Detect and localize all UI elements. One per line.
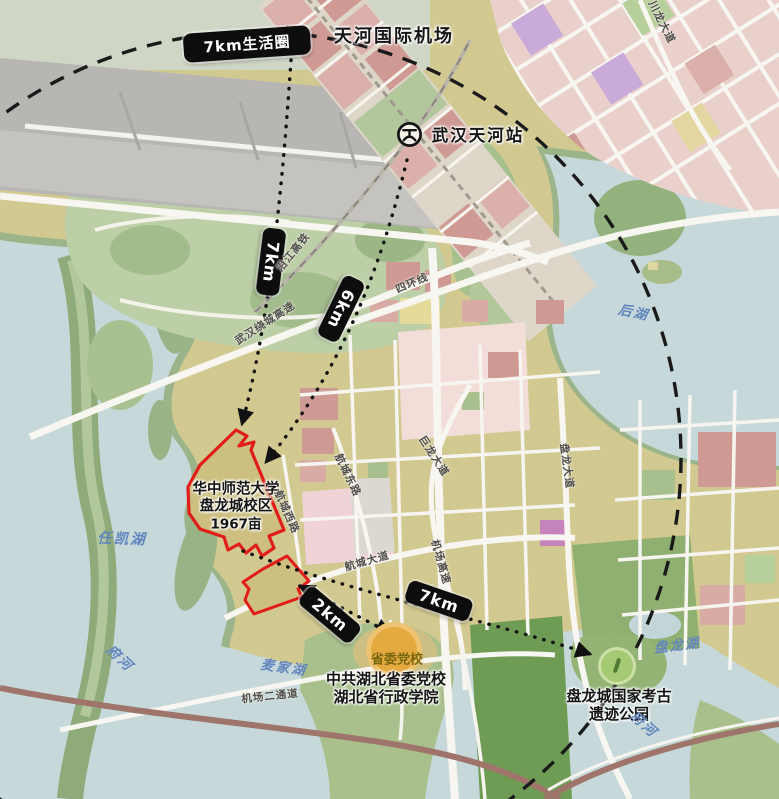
airport-label: 天河国际机场 bbox=[334, 22, 454, 48]
heritage-park-label-line1: 盘龙城国家考古 bbox=[566, 687, 671, 705]
heritage-park-marker bbox=[598, 647, 636, 685]
campus-area-label: 1967亩 bbox=[193, 516, 280, 532]
planning-map: 7km生活圈 7km 6km 2km 7km 天河国际机场 武汉天河站 华中师范… bbox=[0, 0, 779, 799]
party-school-label-line2: 湖北省行政学院 bbox=[326, 688, 446, 706]
party-school-label-line1: 中共湖北省委党校 bbox=[326, 670, 446, 688]
station-label: 武汉天河站 bbox=[432, 122, 525, 146]
railway-station-icon bbox=[395, 120, 424, 149]
party-school-label: 中共湖北省委党校 湖北省行政学院 bbox=[326, 670, 446, 706]
lake-label-renkai: 任凯湖 bbox=[97, 527, 147, 550]
heritage-park-label: 盘龙城国家考古 遗迹公园 bbox=[566, 687, 671, 723]
campus-label: 华中师范大学 盘龙城校区 1967亩 bbox=[193, 482, 280, 533]
campus-label-line2: 盘龙城校区 bbox=[193, 499, 280, 516]
park-marker-inner-mark bbox=[613, 658, 621, 674]
campus-label-line1: 华中师范大学 bbox=[193, 482, 280, 499]
party-school-marker-label: 省委党校 bbox=[371, 649, 423, 668]
